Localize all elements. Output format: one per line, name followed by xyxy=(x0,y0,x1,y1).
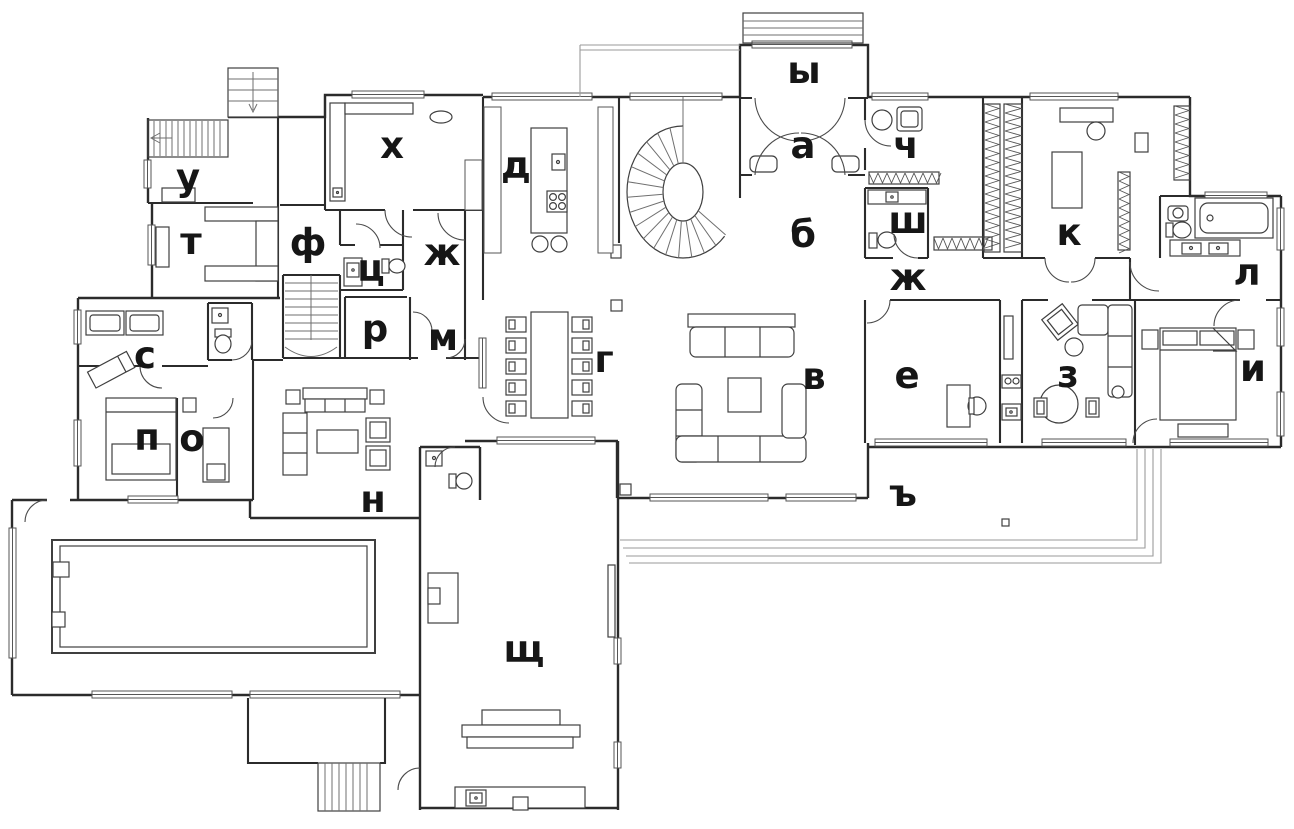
pool-ladder xyxy=(52,612,65,627)
room-label-a: а xyxy=(791,124,816,167)
entry-stair-top-left xyxy=(228,68,278,117)
room-label-z: з xyxy=(1057,353,1079,396)
room-label-f: ф xyxy=(290,221,327,264)
room-label-r: р xyxy=(362,307,389,350)
room-label-g: г xyxy=(594,338,613,381)
furniture-living-v xyxy=(676,314,806,462)
terrace-steps-south xyxy=(318,763,380,811)
room-label-l: л xyxy=(1233,251,1260,294)
room-label-p: п xyxy=(134,416,160,459)
room-label-k: к xyxy=(1056,211,1081,254)
room-label-y: ы xyxy=(787,49,820,92)
room-label-ch: ч xyxy=(893,124,918,167)
room-label-t: т xyxy=(180,220,202,263)
room-label-v: в xyxy=(802,355,825,398)
room-label-s: с xyxy=(134,334,156,377)
room-label-kh: х xyxy=(380,124,404,167)
furniture-wc-west xyxy=(212,308,231,353)
room-label-o: о xyxy=(179,417,204,460)
room-label-shch: щ xyxy=(504,628,545,671)
main-staircase xyxy=(285,275,338,357)
entry-ramp xyxy=(148,120,228,157)
room-label-ts: ц xyxy=(357,247,384,290)
dining-table-g xyxy=(506,312,592,418)
furniture-family-room-n xyxy=(283,388,390,475)
room-label-zh-east: ж xyxy=(890,256,927,299)
room-label-b: б xyxy=(790,213,816,256)
swimming-pool xyxy=(52,540,375,653)
floor-plan-page: утфхцждыабчшжклизевгмрспонъщ xyxy=(0,0,1294,829)
room-label-zh-west: ж xyxy=(424,231,461,274)
room-label-d: д xyxy=(501,144,531,187)
spiral-staircase xyxy=(627,97,726,258)
room-label-u: у xyxy=(176,156,200,199)
furniture-dressing-k xyxy=(1052,108,1148,208)
furniture-bathroom-l xyxy=(1166,198,1273,256)
entry-steps-north xyxy=(743,13,863,43)
furniture-bath-n xyxy=(426,451,472,489)
furniture-lounge-z xyxy=(1034,304,1132,423)
room-label-e: е xyxy=(894,354,919,397)
room-label-m: м xyxy=(428,316,458,359)
room-label-sh: ш xyxy=(888,199,927,242)
furniture-office-e xyxy=(947,316,1021,427)
floor-plan-drawing: утфхцждыабчшжклизевгмрспонъщ xyxy=(0,0,1294,829)
furniture-bedroom-i xyxy=(1142,328,1254,437)
room-label-n: н xyxy=(360,478,386,521)
room-labels: утфхцждыабчшжклизевгмрспонъщ xyxy=(134,49,1266,671)
furniture-hall-shch xyxy=(428,565,615,810)
column xyxy=(620,484,631,495)
terrace-post xyxy=(1002,519,1009,526)
room-label-i: и xyxy=(1240,347,1266,390)
room-label-tvz: ъ xyxy=(889,472,917,515)
pool-ladder xyxy=(53,562,69,577)
column xyxy=(611,300,622,311)
furniture-sauna-x xyxy=(330,103,482,210)
